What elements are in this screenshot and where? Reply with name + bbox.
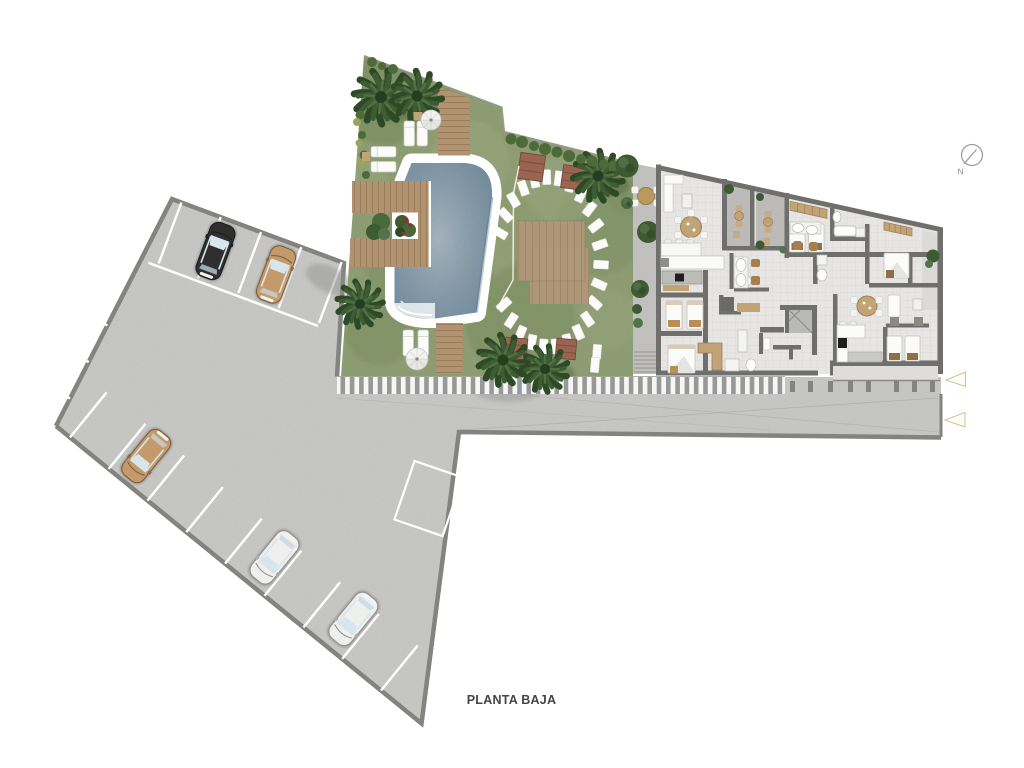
svg-text:PLANTA BAJA: PLANTA BAJA <box>467 693 557 707</box>
svg-text:N: N <box>958 167 964 177</box>
